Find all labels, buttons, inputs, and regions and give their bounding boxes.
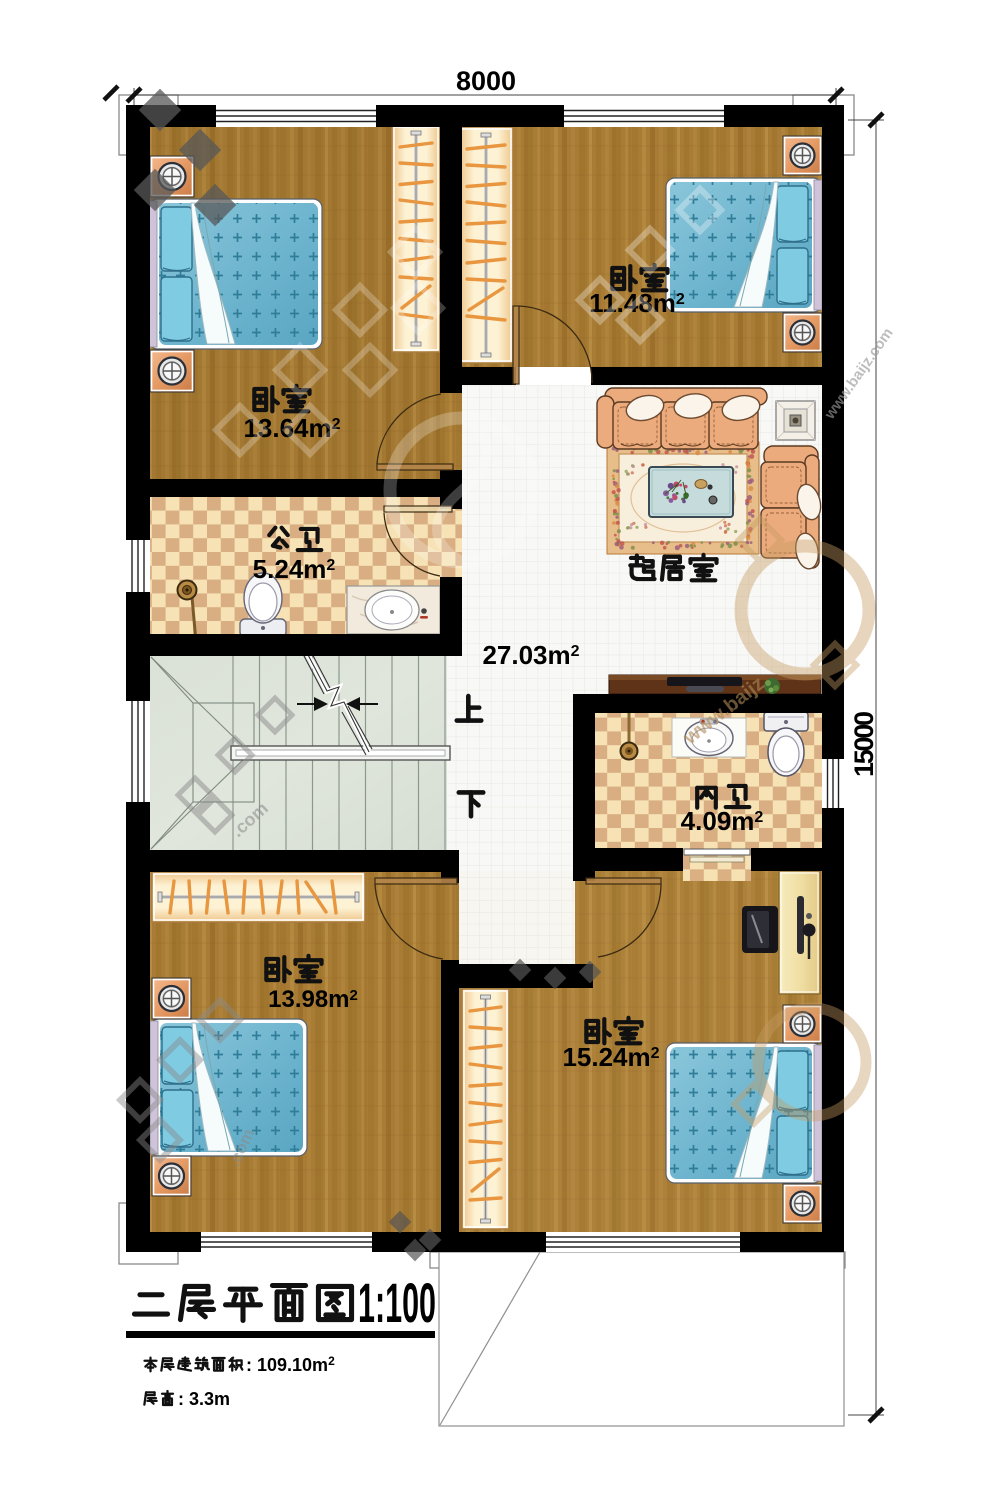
svg-text:13.98m2: 13.98m2 bbox=[268, 986, 358, 1013]
svg-text:1:100: 1:100 bbox=[358, 1271, 436, 1334]
svg-text:: 109.10m2: : 109.10m2 bbox=[246, 1354, 335, 1375]
svg-text:15000: 15000 bbox=[849, 711, 879, 777]
svg-text:15.24m2: 15.24m2 bbox=[562, 1042, 659, 1072]
svg-text:: 3.3m: : 3.3m bbox=[178, 1389, 230, 1409]
svg-text:27.03m2: 27.03m2 bbox=[482, 640, 579, 670]
svg-text:8000: 8000 bbox=[456, 66, 516, 96]
svg-text:5.24m2: 5.24m2 bbox=[253, 554, 336, 584]
svg-text:4.09m2: 4.09m2 bbox=[681, 806, 764, 836]
